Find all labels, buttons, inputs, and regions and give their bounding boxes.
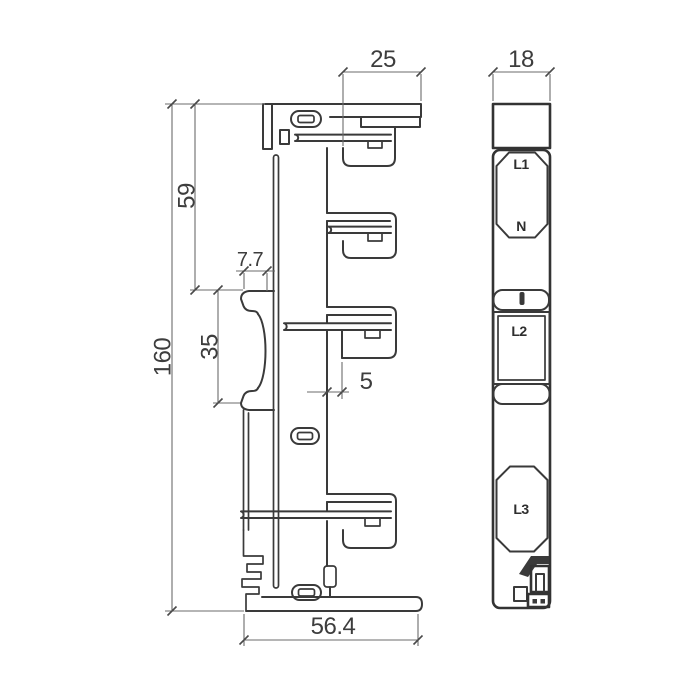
latch-dot-2 [541,599,546,604]
top-left-bar [263,104,272,149]
din-rail-clip [241,291,274,610]
side-view: L1 N L2 L3 [493,104,550,608]
dim-label-35: 35 [196,334,223,360]
dimension-side-width-18: 18 [489,46,555,101]
oval-slot-middle [291,428,319,444]
blade-notch-3 [365,330,380,338]
body-edge-lower [327,502,330,597]
latch-frame [531,566,549,592]
oval-slot-top [291,111,321,127]
dim-label-160: 160 [149,338,176,377]
base-foot [246,597,422,611]
terminal-label-l1: L1 [513,156,529,172]
latch-side-tab [514,587,527,601]
dimension-clip-depth-7-7: 7.7 [236,249,275,291]
top-shelf [361,118,420,127]
terminal-label-l3: L3 [513,501,529,517]
dimension-upper-height-59: 59 [173,100,200,295]
support-bar-3 [327,307,396,358]
terminal-label-n: N [516,218,526,234]
terminal-label-l2: L2 [511,323,527,339]
rib-edges [327,331,342,494]
blade-notch-1 [368,141,382,148]
clip-bow [258,314,266,388]
latch-frame-inner [536,574,544,592]
lower-hook-detail [324,566,336,587]
front-view [241,104,422,611]
dimension-top-overhang-25: 25 [339,46,426,146]
mounting-plate [274,155,279,588]
terminal-blade-2 [328,227,391,233]
terminal-blade-4 [241,511,391,518]
drawing-canvas: L1 N L2 L3 160 [0,0,700,700]
clip-top-hook [241,291,274,314]
connector-band-2 [494,384,550,404]
dim-label-5: 5 [360,368,373,395]
dim-label-56-4: 56.4 [311,613,356,640]
dim-label-59: 59 [173,183,200,209]
dim-label-18: 18 [508,46,534,73]
support-bar-2 [327,213,396,258]
support-bar-4 [327,494,396,548]
technical-drawing: L1 N L2 L3 160 [0,0,700,700]
small-lug [280,130,289,144]
blade-notch-2 [368,233,382,241]
side-top-cap [493,104,550,148]
dimension-rib-width-5: 5 [307,362,373,399]
latch-dot-1 [533,599,538,604]
clip-bottom-hook [241,388,274,410]
terminal-blade-3 [284,323,391,330]
latch-base-bar [528,594,549,607]
dimension-base-width-56-4: 56.4 [240,613,423,646]
blade-notch-4 [365,518,380,526]
clip-latch-ratchet [242,530,263,610]
dim-label-25: 25 [370,46,396,73]
dimension-overall-height-160: 160 [149,100,176,616]
band-key-mark [520,292,525,305]
dimension-rail-opening-35: 35 [196,286,223,408]
dim-label-7-7: 7.7 [237,249,264,271]
bottom-latch [514,556,549,607]
